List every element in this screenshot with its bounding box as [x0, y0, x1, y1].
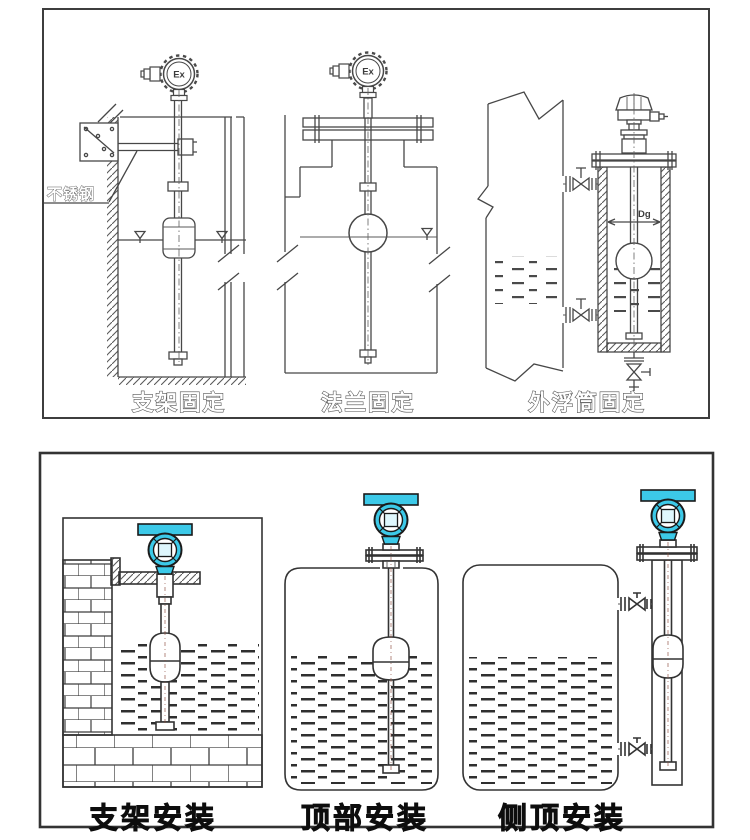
water-dashes [118, 644, 259, 734]
stainless-steel-label: 不锈钢 [47, 185, 95, 203]
ex-marking-label: Ex [362, 67, 374, 78]
bottom-panel: 支架安装 顶部安装 侧顶安装 [40, 453, 713, 835]
tank-liquid [493, 256, 557, 304]
diagram-bracket-installation [63, 518, 262, 787]
top-panel: Ex 不锈钢 [43, 9, 709, 418]
stem-collar [168, 182, 188, 191]
caption-top-installation: 顶部安装 [301, 801, 429, 835]
float-icon [150, 633, 180, 682]
brick-floor [63, 735, 262, 787]
caption-flange-fixing: 法兰固定 [321, 390, 415, 415]
caption-bracket-installation: 支架安装 [89, 802, 217, 835]
ground-hatch [118, 377, 246, 385]
dg-marking-label: Dg [638, 209, 651, 220]
caption-bracket-fixing: 支架固定 [132, 390, 226, 415]
installation-diagram-sheet: Ex 不锈钢 [0, 0, 750, 840]
stem-end-stop [156, 722, 174, 730]
water-dashes [469, 657, 612, 784]
stem-end-stop [169, 352, 187, 359]
ex-marking-label: Ex [173, 70, 185, 81]
mounting-bracket [80, 123, 118, 161]
water-dashes [291, 655, 432, 784]
caption-side-top-installation: 侧顶安装 [498, 802, 626, 835]
figure-canvas: Ex 不锈钢 [0, 0, 750, 840]
brick-wall [63, 560, 112, 735]
stem [161, 604, 169, 634]
caption-external-chamber-fixing: 外浮筒固定 [528, 390, 646, 415]
